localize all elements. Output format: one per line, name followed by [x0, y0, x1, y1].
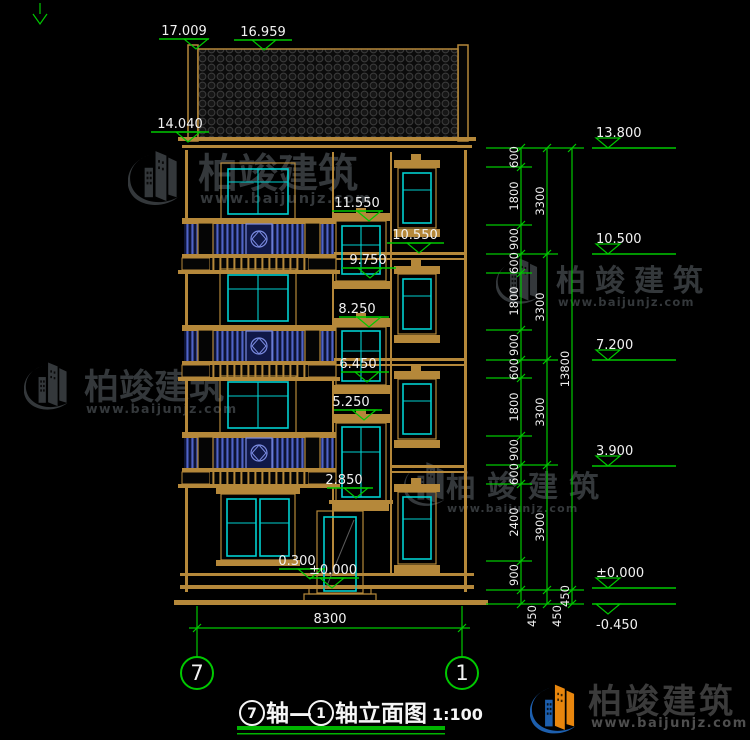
title-underline-thin — [237, 733, 445, 735]
balcony-bottom-rail — [182, 254, 336, 258]
drawing-title: 7 轴— 1 轴立面图 1:100 — [237, 700, 483, 735]
balcony-bottom-rail — [182, 468, 336, 472]
floor-band — [392, 465, 464, 468]
watermark-brand: 柏竣建筑 — [446, 470, 610, 505]
level-label: ±0.000 — [596, 566, 644, 581]
footer-logo: 柏竣建筑 www.baijunjz.com — [530, 682, 748, 733]
wall-right — [464, 150, 467, 592]
dim-label: 600 — [507, 358, 521, 380]
dim-label: 1800 — [507, 181, 521, 210]
balcony-level3 — [178, 325, 340, 381]
dim-label: 900 — [507, 439, 521, 461]
balcony-slab-block — [308, 258, 336, 270]
window-right-f3 — [394, 260, 440, 343]
level-label: 13.800 — [596, 126, 642, 141]
balcony-level2 — [178, 432, 340, 488]
footer-site: www.baijunjz.com — [591, 716, 748, 731]
roof-tile-hatch — [198, 49, 458, 139]
title-axis-start: 7 — [247, 706, 257, 722]
eave-cornice-lower — [182, 145, 472, 148]
title-axis-end: 1 — [316, 706, 326, 722]
dim-label: 3900 — [533, 512, 547, 541]
balcony-post — [198, 330, 213, 362]
watermark-brand: 柏竣建筑 — [556, 264, 712, 299]
dim-label: 450 — [525, 605, 539, 627]
corner-mark — [33, 3, 47, 24]
balcony-post — [305, 330, 320, 362]
level-label: -0.450 — [596, 618, 638, 633]
level-right-marks — [592, 138, 676, 614]
dim-label: 450 — [550, 605, 564, 627]
brand-logo-icon — [24, 362, 68, 409]
dim-label: 900 — [507, 564, 521, 586]
balcony-ornate-panel — [246, 438, 272, 470]
balcony-post — [305, 223, 320, 255]
balcony-slab-block — [182, 472, 210, 484]
dim-label: 3300 — [533, 292, 547, 321]
level-label: ±0.000 — [309, 563, 357, 578]
brand-logo-icon — [128, 151, 178, 205]
level-ridge-left — [159, 39, 209, 49]
building-elevation — [174, 45, 488, 605]
balcony-slab-block — [182, 365, 210, 377]
level-label: 16.959 — [240, 25, 286, 40]
balcony-post — [198, 437, 213, 469]
title-underline-thick — [237, 726, 445, 730]
level-label: 5.250 — [332, 395, 369, 410]
dim-label: 3300 — [533, 186, 547, 215]
dim-label: 1800 — [507, 286, 521, 315]
axis-number-left: 7 — [190, 661, 203, 685]
window-stair-top — [332, 208, 390, 289]
door-step — [304, 594, 376, 601]
brand-logo-icon — [530, 685, 575, 734]
title-text: 轴立面图 — [335, 700, 427, 727]
dim-label: 600 — [507, 463, 521, 485]
balcony-dentils — [210, 258, 308, 270]
balcony-ornate-panel — [246, 331, 272, 363]
stair-tower-right-edge — [390, 152, 392, 575]
balcony-level4 — [178, 218, 340, 274]
dim-label: 600 — [507, 146, 521, 168]
window-right-ground — [394, 478, 440, 573]
dim-label: 3300 — [533, 397, 547, 426]
width-dim-label: 8300 — [313, 612, 346, 627]
balcony-post — [198, 223, 213, 255]
level-label: 11.550 — [334, 196, 380, 211]
dim-label: 900 — [507, 334, 521, 356]
elevation-drawing: 柏竣建筑 www.baijunjz.com 柏竣建筑 www.baijunjz.… — [0, 0, 750, 740]
roof-parapet-right — [458, 45, 468, 141]
roof — [178, 45, 476, 148]
balcony-ornate-panel — [246, 224, 272, 256]
floor-band — [392, 471, 464, 473]
dim-label: 1800 — [507, 392, 521, 421]
dim-label: 13800 — [558, 351, 572, 388]
balcony-slab — [178, 377, 340, 381]
dim-label: 600 — [507, 252, 521, 274]
window-stair-mid — [332, 313, 390, 394]
window-right-f2 — [394, 365, 440, 448]
balcony-bottom-rail — [182, 361, 336, 365]
axis-number-right: 1 — [455, 661, 468, 685]
dim-label: 2400 — [507, 507, 521, 536]
balcony-slab-block — [308, 365, 336, 377]
window-right-f4 — [394, 154, 440, 237]
balcony-dentils — [210, 365, 308, 377]
title-joiner: 轴— — [266, 700, 312, 727]
title-scale: 1:100 — [432, 705, 483, 724]
balcony-post — [305, 437, 320, 469]
dim-label: 450 — [558, 585, 572, 607]
level-label: 3.900 — [596, 444, 633, 459]
watermark-right: 柏竣建筑 www.baijunjz.com — [496, 258, 712, 309]
dim-label: 900 — [507, 228, 521, 250]
level-label: 10.500 — [596, 232, 642, 247]
level-label: 10.550 — [392, 228, 438, 243]
eave-cornice — [178, 137, 476, 141]
level-label: 6.450 — [339, 357, 376, 372]
watermark-site: www.baijunjz.com — [86, 401, 238, 416]
level-label: 8.250 — [338, 302, 375, 317]
window-stair-low — [329, 409, 393, 511]
level-label: 14.040 — [157, 117, 203, 132]
level-label: 17.009 — [161, 24, 207, 39]
level-label: 9.750 — [349, 253, 386, 268]
cad-elevation-viewport: 柏竣建筑 www.baijunjz.com 柏竣建筑 www.baijunjz.… — [0, 0, 750, 740]
level-label: 7.200 — [596, 338, 633, 353]
window-left-f3 — [220, 269, 296, 327]
level-label: 2.850 — [325, 473, 362, 488]
watermark-site: www.baijunjz.com — [558, 295, 695, 309]
balcony-slab — [178, 270, 340, 274]
balcony-dentils — [210, 472, 308, 484]
balcony-slab-block — [182, 258, 210, 270]
